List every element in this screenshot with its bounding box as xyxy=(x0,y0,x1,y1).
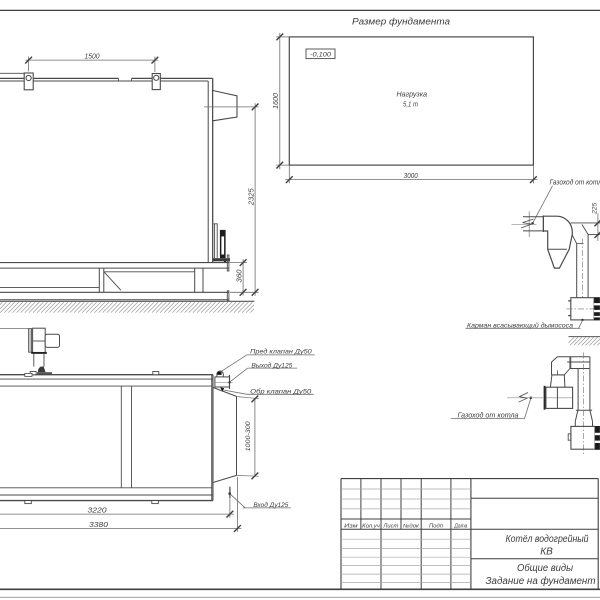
svg-text:1000-300: 1000-300 xyxy=(246,421,252,452)
svg-text:Лист: Лист xyxy=(382,523,399,529)
svg-text:-0,100: -0,100 xyxy=(310,52,332,58)
svg-text:Кол.уч: Кол.уч xyxy=(362,523,380,529)
svg-text:№док: №док xyxy=(403,523,420,529)
svg-text:Котёл водогрейный: Котёл водогрейный xyxy=(506,534,589,545)
svg-text:1600: 1600 xyxy=(273,93,280,109)
svg-text:Подп: Подп xyxy=(429,523,443,529)
svg-text:2325: 2325 xyxy=(248,188,255,206)
svg-text:3000: 3000 xyxy=(404,173,418,180)
svg-text:Изм: Изм xyxy=(344,523,358,529)
svg-text:Газоход от котла: Газоход от котла xyxy=(550,178,600,186)
svg-text:Пред клапан Ду50: Пред клапан Ду50 xyxy=(250,347,312,355)
svg-text:Задание на фундамент: Задание на фундамент xyxy=(486,575,596,587)
svg-text:КВ: КВ xyxy=(540,547,553,558)
svg-text:3380: 3380 xyxy=(89,522,108,529)
svg-text:360: 360 xyxy=(236,269,243,282)
svg-text:Общие виды: Общие виды xyxy=(517,562,574,574)
svg-text:5,1 т: 5,1 т xyxy=(403,101,418,108)
svg-text:Дата: Дата xyxy=(453,523,467,529)
svg-text:225: 225 xyxy=(591,203,598,215)
svg-text:Размер фундамента: Размер фундамента xyxy=(352,17,450,28)
svg-text:1500: 1500 xyxy=(85,53,100,60)
svg-text:Нагрузка: Нагрузка xyxy=(397,92,428,99)
svg-text:3220: 3220 xyxy=(88,507,107,514)
